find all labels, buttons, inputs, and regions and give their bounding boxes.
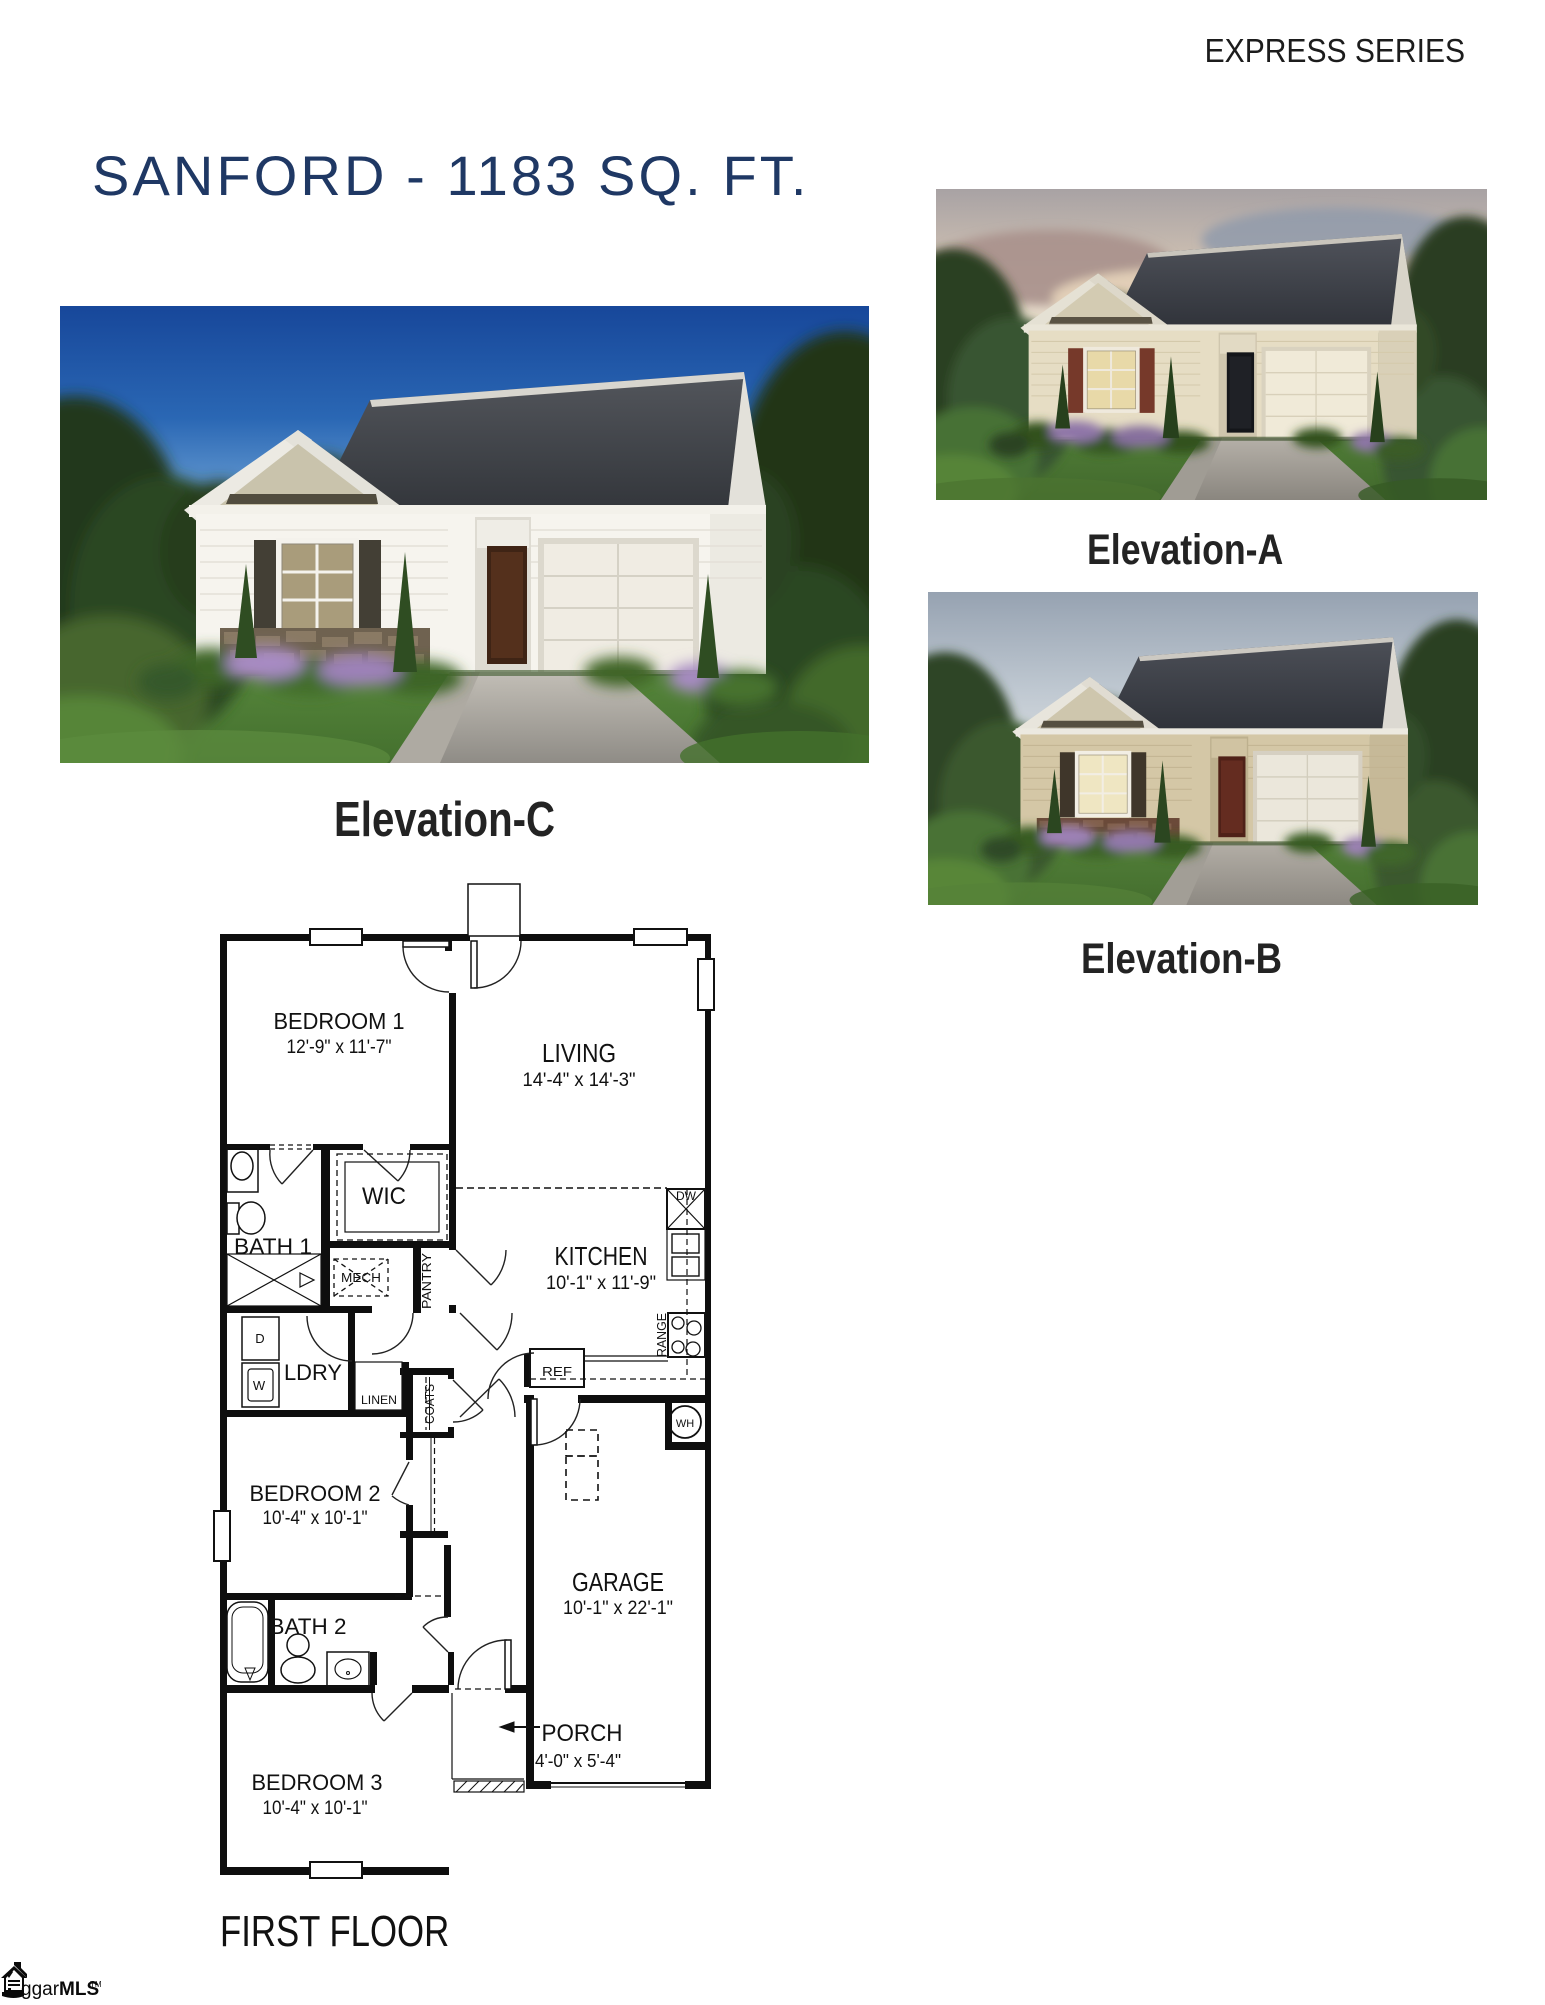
svg-text:LIVING: LIVING	[542, 1038, 616, 1068]
svg-text:PANTRY: PANTRY	[419, 1253, 434, 1309]
svg-text:REF: REF	[542, 1364, 572, 1379]
svg-text:WIC: WIC	[362, 1183, 406, 1210]
svg-text:KITCHEN: KITCHEN	[555, 1241, 648, 1271]
svg-text:WH: WH	[676, 1418, 694, 1430]
svg-text:BATH 2: BATH 2	[270, 1614, 347, 1639]
svg-text:10'-4" x 10'-1": 10'-4" x 10'-1"	[263, 1508, 368, 1529]
svg-text:10'-1" x 22'-1": 10'-1" x 22'-1"	[563, 1598, 673, 1619]
svg-text:10'-1" x 11'-9": 10'-1" x 11'-9"	[546, 1273, 656, 1294]
svg-text:DW: DW	[676, 1189, 697, 1203]
svg-text:TM: TM	[90, 1980, 102, 1989]
svg-text:RANGE: RANGE	[654, 1313, 669, 1357]
svg-text:BEDROOM 1: BEDROOM 1	[274, 1008, 405, 1034]
svg-text:MECH: MECH	[341, 1270, 381, 1285]
svg-text:LINEN: LINEN	[361, 1393, 397, 1407]
svg-text:LDRY: LDRY	[284, 1360, 342, 1385]
svg-text:GARAGE: GARAGE	[572, 1567, 664, 1597]
svg-text:4'-0" x 5'-4": 4'-0" x 5'-4"	[535, 1751, 621, 1771]
svg-text:W: W	[253, 1378, 266, 1393]
svg-text:14'-4" x 14'-3": 14'-4" x 14'-3"	[523, 1070, 636, 1091]
svg-text:PORCH: PORCH	[542, 1720, 623, 1747]
svg-text:BATH 1: BATH 1	[234, 1234, 312, 1259]
svg-text:D: D	[255, 1331, 264, 1346]
svg-text:BEDROOM 2: BEDROOM 2	[250, 1481, 381, 1506]
svg-text:12'-9" x 11'-7": 12'-9" x 11'-7"	[287, 1037, 392, 1058]
svg-text:10'-4" x 10'-1": 10'-4" x 10'-1"	[263, 1798, 368, 1819]
svg-text:BEDROOM 3: BEDROOM 3	[252, 1770, 383, 1795]
svg-text:ggarMLS: ggarMLS	[21, 1979, 99, 2000]
svg-text:COATS: COATS	[422, 1384, 437, 1424]
